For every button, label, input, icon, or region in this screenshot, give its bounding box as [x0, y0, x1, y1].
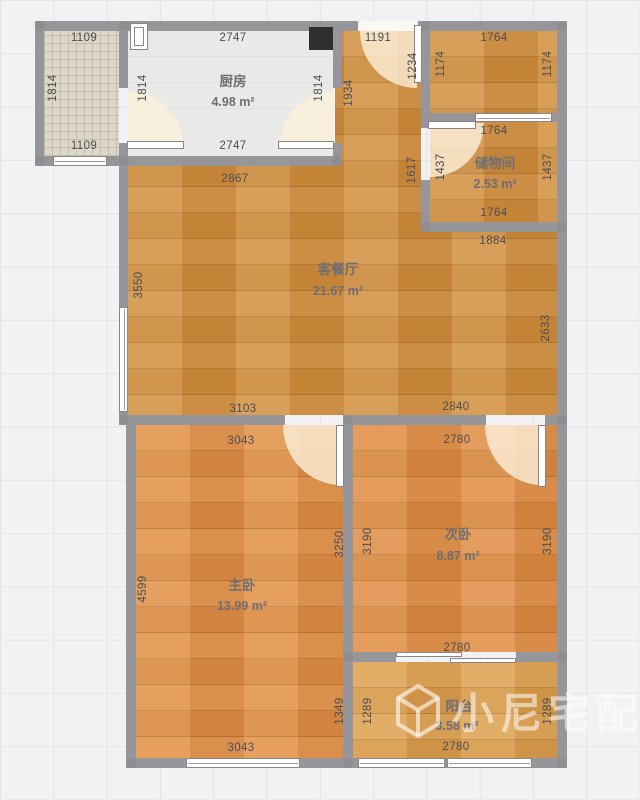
room-label-living: 客餐厅	[318, 258, 359, 278]
dim-living-bottom-left: 3103	[229, 403, 256, 415]
room-label-storage: 储物间	[475, 152, 516, 172]
dim-hatch-left: 1814	[47, 74, 59, 101]
wall-joint	[35, 21, 45, 31]
dim-entry-left-lower: 1617	[406, 156, 418, 183]
wall-middle-a	[119, 415, 285, 425]
dim-troom-left: 1174	[435, 51, 447, 77]
dim-storage-right: 1437	[542, 153, 554, 180]
wall-joint	[557, 222, 567, 232]
wall-living-left-upper	[119, 156, 128, 307]
room-area-master: 13.99 m²	[217, 599, 267, 613]
kitchen-left-door-leaf	[127, 141, 184, 149]
dim-balcony-bottom: 2780	[442, 741, 469, 753]
master-bedroom-window	[186, 758, 300, 768]
room-area-storage: 2.53 m²	[473, 177, 516, 191]
wall-joint	[421, 21, 431, 31]
wall-middle-b	[343, 415, 486, 425]
wall-hatch-kitchen-upper	[119, 21, 128, 88]
dim-living-top: 2867	[221, 173, 248, 185]
living-room-window	[119, 307, 128, 412]
dim-storage-left: 1437	[435, 153, 447, 180]
wall-balcony-top-a	[353, 652, 396, 662]
balcony-window-left	[358, 758, 445, 768]
dim-entry-top: 1191	[365, 32, 391, 44]
wall-master-left	[126, 415, 136, 768]
wall-joint	[119, 21, 129, 31]
dim-storage-bottom: 1764	[480, 207, 507, 219]
room-label-master: 主卧	[229, 574, 256, 594]
wall-hatch-left	[35, 21, 44, 166]
wall-troom-bottom-b	[552, 113, 567, 122]
dim-entry-left: 1934	[343, 79, 355, 106]
dim-balcony-right: 1289	[542, 697, 554, 724]
wall-joint	[421, 222, 431, 232]
dim-second-top: 2780	[443, 434, 470, 446]
second-door-leaf	[538, 425, 546, 487]
wall-joint	[343, 415, 353, 425]
dim-kitchen-left: 1814	[137, 74, 149, 101]
dim-troom-right: 1174	[542, 51, 554, 77]
wall-joint	[557, 415, 567, 425]
wall-corridor-right-upper	[421, 21, 430, 128]
dim-balcony-left: 1289	[362, 697, 374, 724]
wall-joint	[557, 758, 567, 768]
dim-second-bottom: 2780	[443, 642, 470, 654]
dim-kitchen-top: 2747	[219, 32, 246, 44]
dim-troom-top: 1764	[480, 32, 507, 44]
kitchen-right-door-leaf	[278, 141, 334, 149]
storage-top-window	[475, 113, 552, 122]
kitchen-casement-window	[130, 23, 148, 50]
room-label-kitchen: 厨房	[220, 70, 247, 90]
balcony-window-right	[447, 758, 532, 768]
dim-living-bottom-right: 2840	[442, 401, 469, 413]
dim-kitchen-bottom: 2747	[219, 140, 246, 152]
dim-master-top: 3043	[227, 435, 254, 447]
service-yard-window	[53, 156, 107, 166]
room-label-balcony: 阳台	[446, 695, 473, 715]
dim-hatch-bottom: 1109	[71, 140, 97, 152]
wall-kitchen-right-lower	[333, 143, 342, 156]
dim-living-right: 2633	[540, 314, 552, 341]
wall-joint	[557, 21, 567, 31]
room-label-second: 次卧	[445, 523, 472, 543]
wall-joint	[332, 156, 342, 166]
dim-kitchen-right: 1814	[313, 74, 325, 101]
master-door-leaf	[336, 425, 344, 487]
sliding-door-panel	[450, 658, 516, 663]
dim-living-left: 3550	[133, 271, 145, 298]
room-area-balcony: 3.58 m²	[435, 719, 478, 733]
room-area-living: 21.67 m²	[313, 284, 363, 298]
dim-hatch-top: 1109	[71, 32, 97, 44]
wall-joint	[119, 415, 129, 425]
kitchen-flue	[309, 27, 333, 50]
wall-joint	[35, 156, 45, 166]
wall-joint	[557, 652, 567, 662]
floor-plan: 1109 1814 1109 1814 2747 1814 2747 1191 …	[0, 0, 640, 800]
dim-master-left: 4599	[137, 575, 149, 602]
wall-joint	[343, 652, 353, 662]
entry-opening	[358, 21, 418, 31]
dim-entry-right: 1234	[407, 52, 419, 79]
room-area-kitchen: 4.98 m²	[211, 95, 254, 109]
dim-storage-below: 1884	[479, 235, 506, 247]
wall-kitchen-right-upper	[333, 21, 342, 88]
room-area-second: 8.87 m²	[436, 549, 479, 563]
wall-joint	[343, 758, 353, 768]
wall-joint	[126, 758, 136, 768]
dim-master-bottom: 3043	[227, 742, 254, 754]
wall-top-right	[418, 21, 567, 31]
dim-second-right: 3190	[542, 527, 554, 554]
dim-storage-top: 1764	[480, 125, 507, 137]
dim-master-right-lower: 1349	[334, 697, 346, 724]
dim-second-left: 3190	[362, 527, 374, 554]
dim-master-right: 3250	[334, 530, 346, 557]
storage-door-leaf	[428, 121, 476, 129]
wall-joint	[119, 156, 129, 166]
wall-storage-bottom	[421, 222, 567, 232]
